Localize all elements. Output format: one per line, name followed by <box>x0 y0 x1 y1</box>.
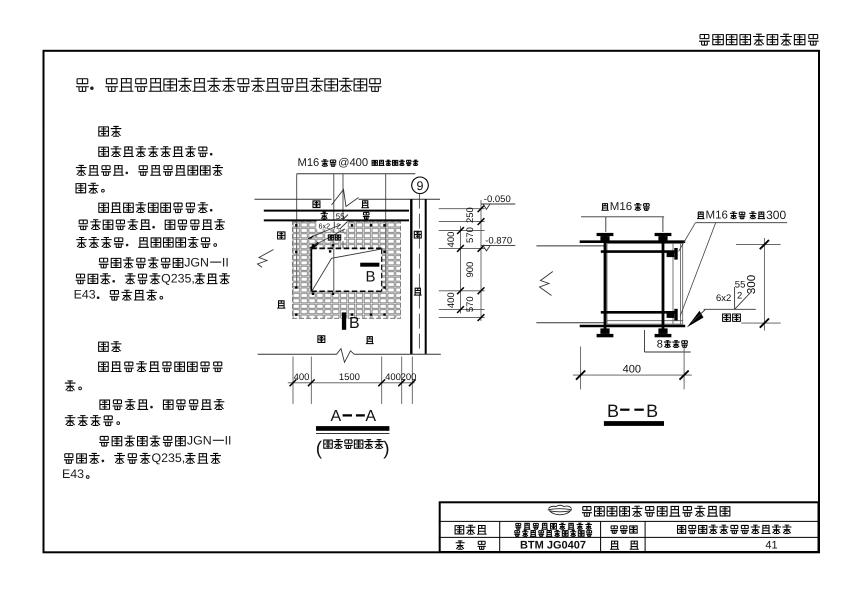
svg-text:570: 570 <box>465 296 476 312</box>
svg-text:400: 400 <box>446 292 457 308</box>
svg-text:E43: E43 <box>62 467 84 481</box>
svg-text:300: 300 <box>746 275 758 294</box>
svg-text:): ) <box>383 438 389 459</box>
svg-text:E43: E43 <box>74 288 96 302</box>
svg-text:9: 9 <box>417 179 424 193</box>
svg-text:400: 400 <box>623 364 641 376</box>
svg-text:B: B <box>365 269 375 286</box>
svg-text:M16: M16 <box>610 201 632 213</box>
svg-text:M16: M16 <box>706 209 728 221</box>
svg-text:M16: M16 <box>298 157 320 169</box>
svg-text:6x2: 6x2 <box>319 221 331 230</box>
svg-text:II: II <box>225 434 232 448</box>
svg-text:1500: 1500 <box>339 372 360 383</box>
svg-text:400: 400 <box>294 372 310 383</box>
svg-text:A: A <box>365 408 376 425</box>
svg-text:JGN: JGN <box>184 255 209 269</box>
svg-text:6x2: 6x2 <box>716 293 731 304</box>
svg-text:2: 2 <box>737 290 742 301</box>
svg-text:(: ( <box>316 438 323 459</box>
svg-text:@400: @400 <box>338 157 368 169</box>
svg-text:B: B <box>646 401 658 421</box>
svg-text:A: A <box>330 408 341 425</box>
svg-text:400: 400 <box>446 232 457 248</box>
svg-text:900: 900 <box>465 262 476 278</box>
svg-text:570: 570 <box>465 227 476 243</box>
svg-text:55: 55 <box>735 280 746 291</box>
svg-text:-0.870: -0.870 <box>485 236 512 247</box>
svg-text:B: B <box>349 315 360 332</box>
svg-text:BTM JG0407: BTM JG0407 <box>520 540 586 552</box>
svg-text:II: II <box>222 255 229 269</box>
svg-text:Q235,: Q235, <box>152 451 186 465</box>
svg-text:8: 8 <box>657 339 663 351</box>
svg-text:JGN: JGN <box>187 434 212 448</box>
svg-text:Q235,: Q235, <box>161 271 195 285</box>
svg-text:B: B <box>607 401 619 421</box>
svg-text:400: 400 <box>385 372 401 383</box>
svg-text:55: 55 <box>336 212 345 221</box>
svg-text:41: 41 <box>765 539 777 551</box>
svg-text:2: 2 <box>336 221 340 230</box>
svg-text:250: 250 <box>465 207 476 223</box>
svg-text:300: 300 <box>766 208 786 222</box>
svg-text:-0.050: -0.050 <box>484 194 511 205</box>
svg-text:200: 200 <box>401 372 417 383</box>
